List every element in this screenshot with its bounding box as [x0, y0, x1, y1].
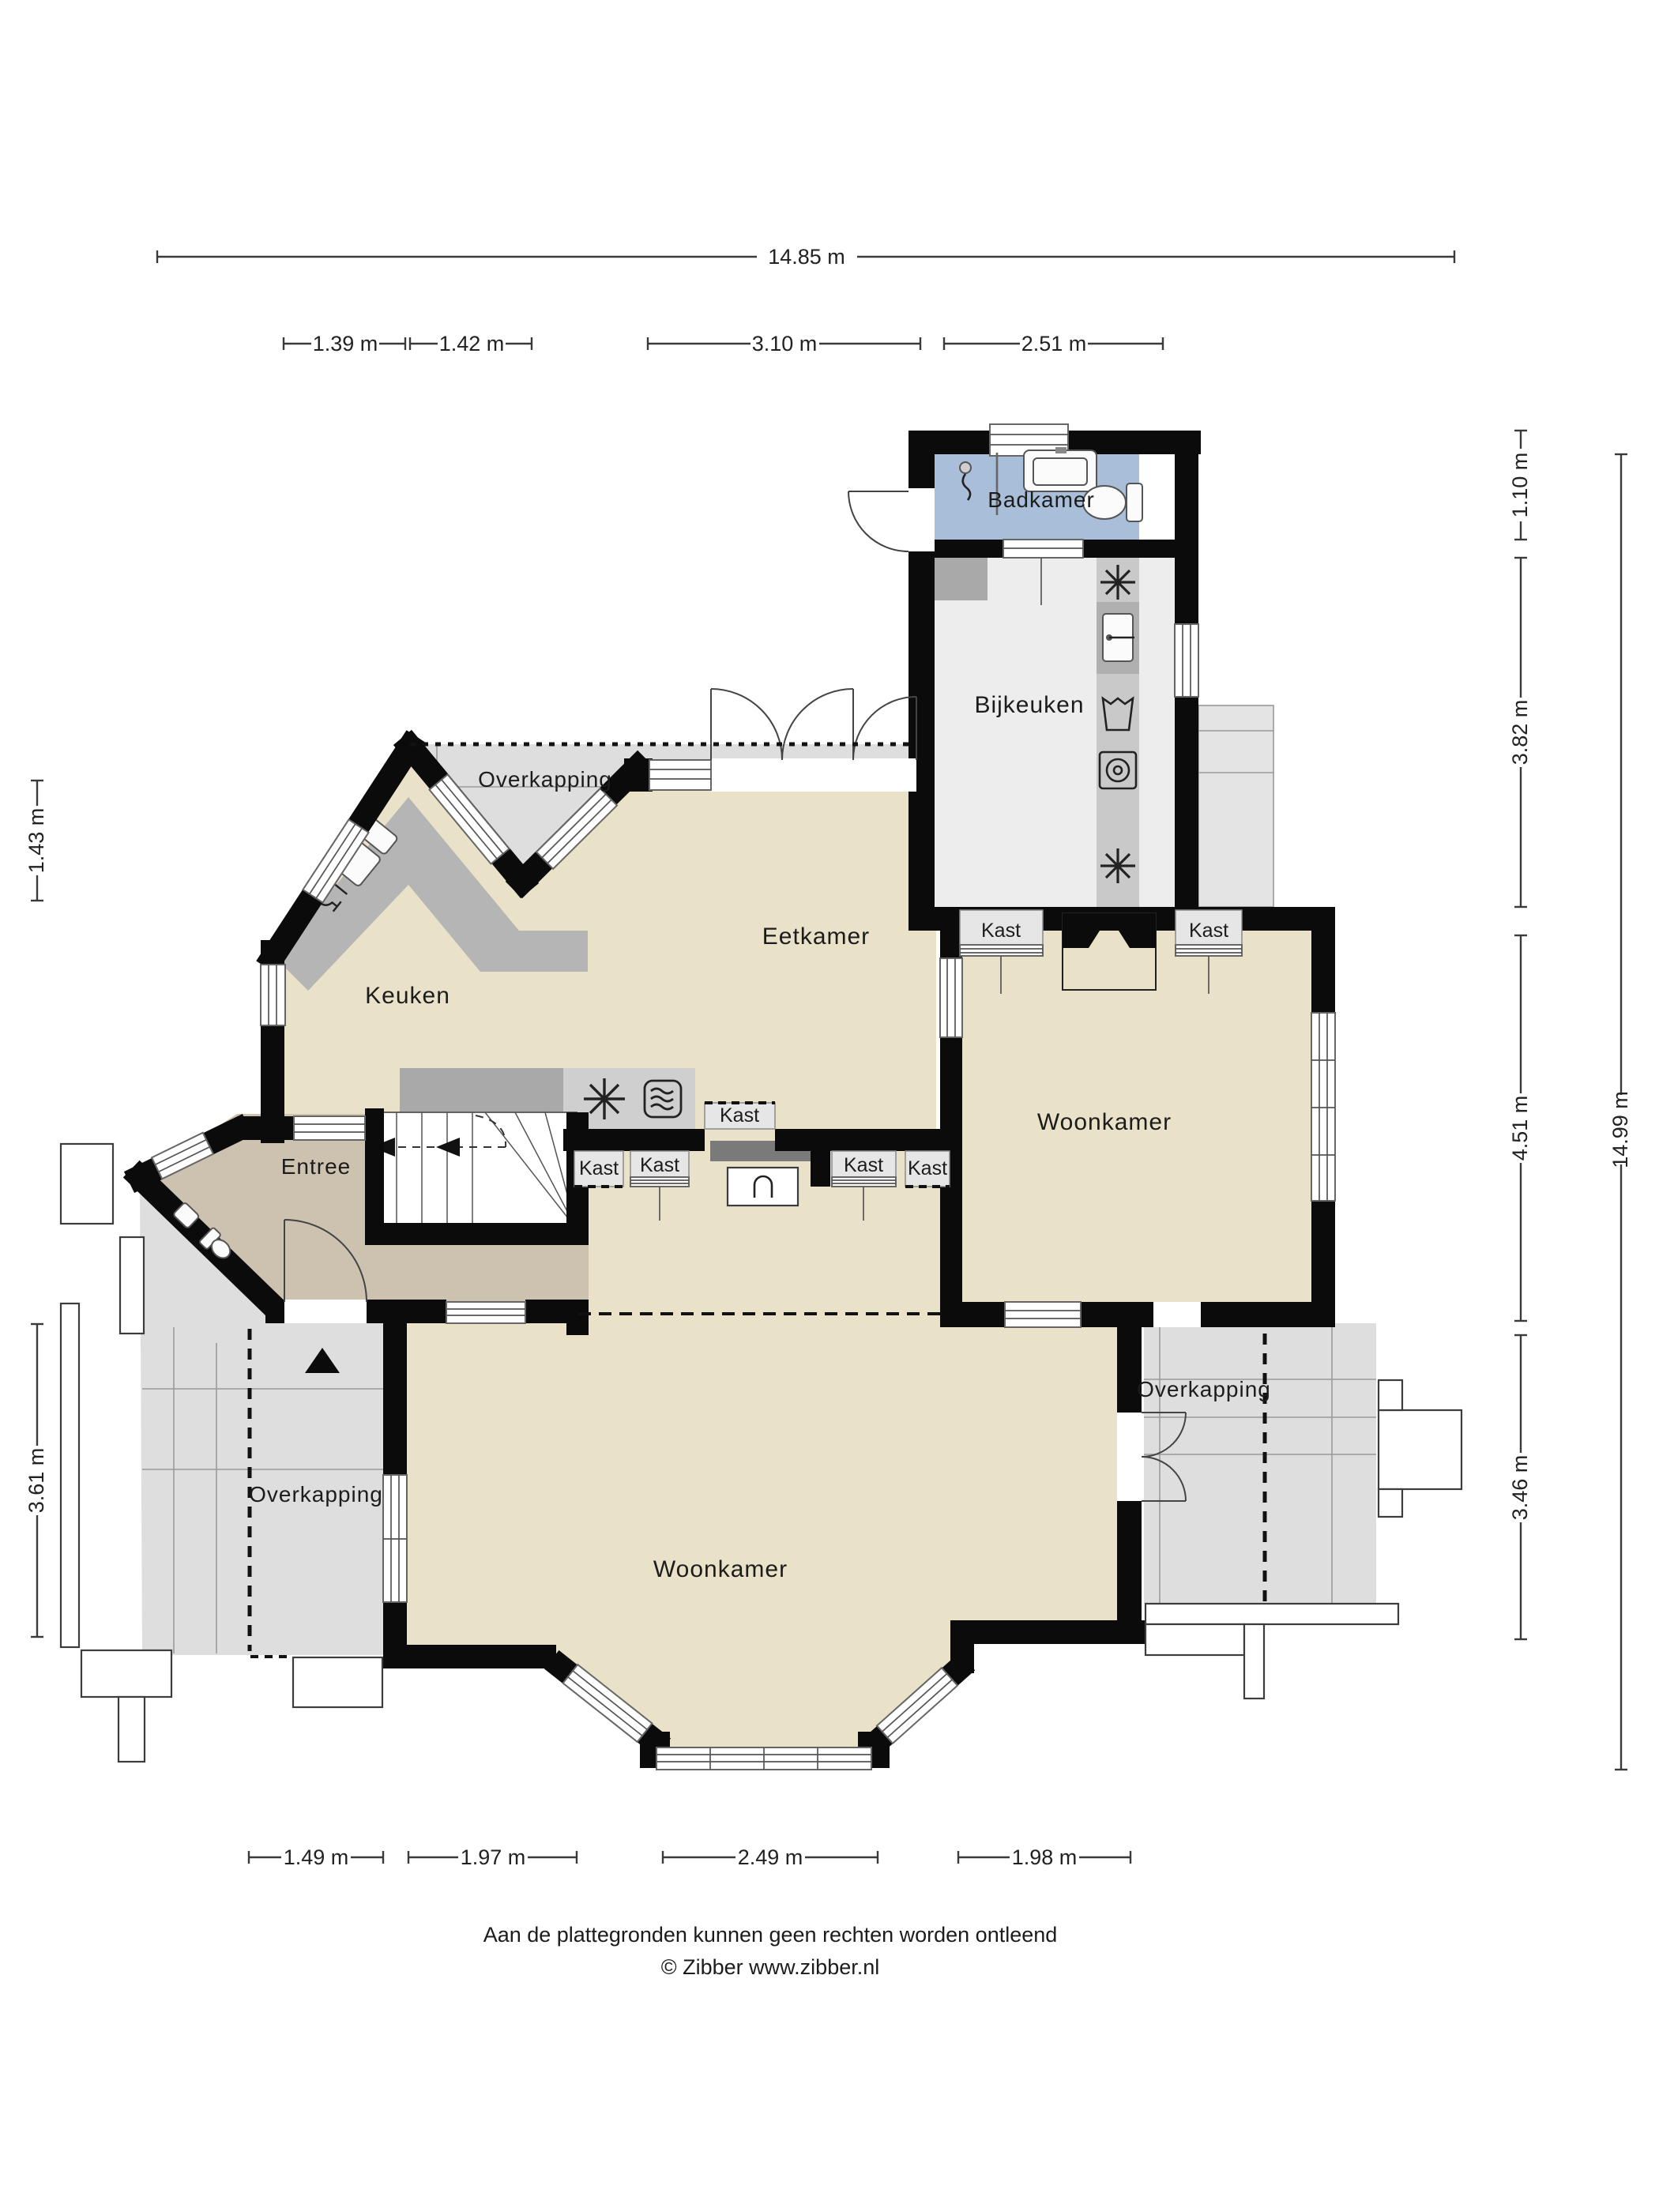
footer: Aan de plattegronden kunnen geen rechten… — [483, 1923, 1058, 1979]
bath-sink-icon — [1024, 447, 1097, 491]
kast-4: Kast — [574, 1151, 623, 1187]
overkapping-links-label: Overkapping — [249, 1482, 383, 1507]
window-woonkamerboven-bottom — [1005, 1302, 1081, 1327]
floorplan-drawing: Kast Kast Kast Kast Kast Kast — [0, 0, 1659, 2212]
entree-label: Entree — [281, 1154, 352, 1179]
window-woonkamer-left — [383, 1475, 407, 1602]
kast-label: Kast — [844, 1154, 883, 1176]
dim-value: 2.49 m — [738, 1845, 803, 1869]
dim-value: 3.10 m — [752, 332, 818, 355]
badkamer-label: Badkamer — [987, 487, 1095, 512]
window-entree-bottom — [446, 1302, 525, 1323]
dim-bottom-4: 1.98 m — [958, 1845, 1130, 1869]
dim-top-4: 2.51 m — [944, 332, 1163, 355]
shed-area — [1198, 705, 1273, 907]
dim-value: 3.82 m — [1508, 700, 1532, 766]
kast-label: Kast — [981, 920, 1021, 942]
dim-left-1: 1.43 m — [24, 781, 48, 901]
dim-top-total: 14.85 m — [157, 245, 1454, 269]
window-keuken-entree — [294, 1116, 365, 1140]
woonkamer-beneden-label: Woonkamer — [653, 1556, 788, 1582]
dim-right-3: 4.51 m — [1508, 935, 1532, 1321]
kast-3: Kast — [705, 1103, 775, 1129]
dim-top-3: 3.10 m — [648, 332, 920, 355]
dim-value: 1.49 m — [284, 1845, 349, 1869]
dim-right-1: 1.10 m — [1508, 431, 1532, 540]
kast-label: Kast — [720, 1104, 759, 1127]
utility-sink-icon — [1103, 614, 1134, 661]
bijkeuken-cupboard — [935, 558, 987, 600]
kast-label: Kast — [640, 1154, 679, 1176]
woonkamer-boven-label: Woonkamer — [1037, 1109, 1172, 1135]
footer-copyright: © Zibber www.zibber.nl — [661, 1955, 880, 1979]
bijkeuken-label: Bijkeuken — [974, 692, 1084, 718]
dim-value: 1.39 m — [313, 332, 378, 355]
overkapping-top-label: Overkapping — [478, 767, 612, 792]
kast-7: Kast — [905, 1151, 950, 1187]
eetkamer-label: Eetkamer — [762, 924, 870, 950]
dim-right-4: 3.46 m — [1508, 1335, 1532, 1639]
footer-disclaimer: Aan de plattegronden kunnen geen rechten… — [483, 1923, 1058, 1947]
dim-value: 4.51 m — [1508, 1096, 1532, 1161]
keuken-label: Keuken — [365, 983, 450, 1009]
dim-bottom-1: 1.49 m — [249, 1845, 383, 1869]
window-keuken-left — [261, 965, 285, 1025]
dim-right-total: 14.99 m — [1608, 454, 1632, 1770]
window-woonkamerboven-right — [1311, 1013, 1335, 1201]
dim-bottom-3: 2.49 m — [663, 1845, 878, 1869]
dim-value: 1.97 m — [461, 1845, 526, 1869]
dim-value: 1.10 m — [1508, 453, 1532, 518]
overkapping-rechts-area — [1144, 1323, 1376, 1604]
dim-top-2: 1.42 m — [410, 332, 532, 355]
kast-label: Kast — [579, 1157, 619, 1179]
bijkeuken-appliances — [1097, 558, 1139, 907]
dim-value: 3.61 m — [24, 1448, 48, 1514]
dim-top-1: 1.39 m — [284, 332, 405, 355]
dim-right-2: 3.82 m — [1508, 558, 1532, 907]
kast-label: Kast — [908, 1157, 947, 1179]
floorplan-page: Kast Kast Kast Kast Kast Kast — [0, 0, 1659, 2212]
dim-value: 14.85 m — [768, 245, 845, 269]
kast-label: Kast — [1189, 920, 1228, 942]
dim-value: 1.98 m — [1012, 1845, 1078, 1869]
dim-value: 14.99 m — [1608, 1091, 1632, 1168]
window-annex-right — [1175, 624, 1198, 697]
dim-value: 1.42 m — [439, 332, 505, 355]
woonkamer-beneden-floor — [395, 1315, 1130, 1752]
window-woonkamerboven-left — [940, 958, 962, 1037]
door-bijkeuken-exterior — [848, 491, 908, 551]
window-bay-bottom — [656, 1747, 871, 1770]
bijkeuken-floor — [928, 549, 1177, 912]
dim-value: 2.51 m — [1021, 332, 1087, 355]
dim-value: 3.46 m — [1508, 1455, 1532, 1521]
window-eetkamer-top — [649, 760, 711, 790]
dim-bottom-2: 1.97 m — [408, 1845, 577, 1869]
dim-value: 1.43 m — [24, 808, 48, 874]
dim-left-2: 3.61 m — [24, 1324, 48, 1637]
overkapping-rechts-label: Overkapping — [1137, 1377, 1271, 1401]
stairs — [371, 1112, 577, 1232]
